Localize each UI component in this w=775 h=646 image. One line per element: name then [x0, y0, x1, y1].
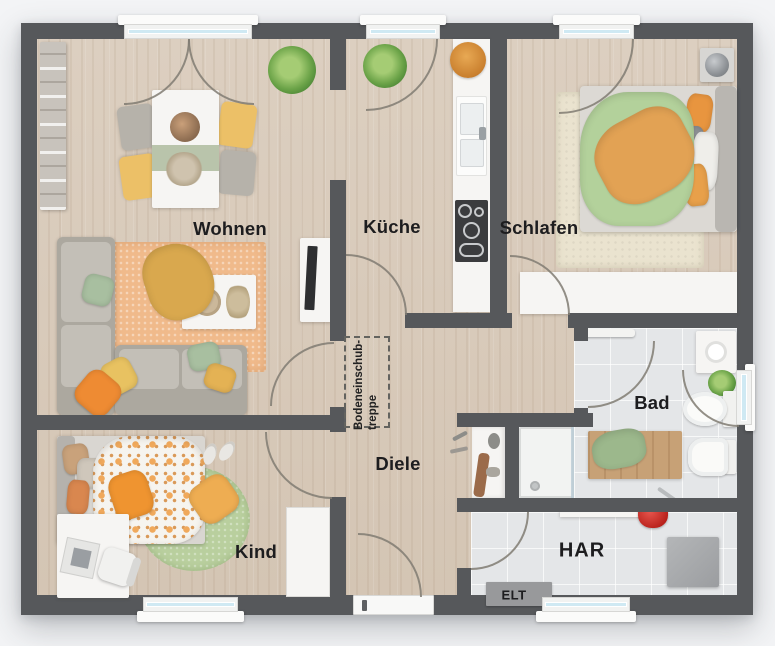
burner [474, 207, 484, 217]
storage-box [667, 537, 719, 587]
toilet-bowl [683, 392, 727, 426]
room-label-kind: Kind [235, 541, 277, 563]
wall-niche-top [457, 413, 593, 427]
room-label-wohnen: Wohnen [193, 218, 267, 240]
wall-wohnen-diele [330, 180, 346, 341]
wall-schlafen-bad [568, 313, 737, 328]
speaker [705, 53, 729, 77]
cleaning-items [488, 433, 500, 449]
bidet [688, 436, 736, 478]
window-glass [128, 29, 248, 34]
shower-drain [530, 481, 540, 491]
monitor-screen [70, 548, 91, 569]
palm-plant [268, 46, 316, 94]
cleaning-items [486, 467, 500, 477]
window-glass [563, 29, 630, 34]
room-label-schlafen: Schlafen [500, 217, 579, 239]
wall-wohnen-kind [37, 415, 346, 430]
bedroom-sideboard [520, 272, 737, 314]
window-sill [137, 611, 244, 622]
bookshelf [40, 42, 66, 210]
dried-flowers [164, 152, 204, 186]
wall-kueche-schlafen [490, 39, 507, 328]
centerpiece-bowl [170, 112, 200, 142]
wall-bad-left-top [574, 328, 588, 341]
window-glass [146, 602, 235, 607]
headboard [715, 86, 737, 232]
toilet-paper-holder [696, 331, 736, 373]
window-glass [741, 374, 747, 421]
attic-stairs-line1: Bodeneinschub- [353, 334, 367, 430]
attic-stairs-line2: treppe [367, 334, 381, 430]
nightstand [700, 48, 734, 82]
room-label-kueche: Küche [363, 216, 421, 238]
burner [463, 222, 480, 239]
dining-chair-gray [217, 150, 257, 197]
room-label-elt: ELT [501, 588, 526, 603]
toilet [683, 389, 737, 429]
dining-chair-yellow [216, 101, 258, 150]
wall-har-left [457, 568, 471, 595]
room-label-diele: Diele [375, 453, 420, 475]
door-handle [362, 600, 367, 611]
dining-table [152, 90, 219, 208]
wall-kind-diele [330, 497, 346, 595]
fruit-bowl [450, 42, 486, 78]
mustard-throw-blanket [135, 234, 223, 327]
paper-roll [705, 341, 727, 363]
bidet-basin [688, 438, 728, 476]
burner-oval [459, 243, 484, 257]
window-glass [370, 29, 436, 34]
shower-glass [571, 427, 574, 498]
wall-kueche-diele [405, 313, 507, 328]
wardrobe [286, 507, 330, 597]
corner-sofa [57, 237, 247, 415]
kitchen-plant [363, 44, 407, 88]
wall-segment [507, 313, 512, 328]
sink-basin [460, 139, 484, 167]
kitchen-sink [456, 96, 487, 176]
wall-bad-har [457, 498, 737, 512]
double-bed [580, 86, 737, 232]
window-sill [536, 611, 636, 622]
attic-stairs-label: Bodeneinschub- treppe [353, 334, 381, 430]
entrance-door [353, 595, 434, 615]
towel-rail [583, 329, 635, 337]
wall-wohnen-kueche-stub [330, 39, 346, 90]
orange-pillow [66, 479, 91, 515]
storage-niche [472, 427, 505, 498]
room-label-bad: Bad [634, 392, 670, 414]
burner [458, 204, 472, 218]
window-glass [545, 602, 627, 607]
floor-plan-canvas: Bodeneinschub- treppe Wohnen Küche Schla… [0, 0, 775, 646]
room-label-har: HAR [559, 540, 605, 563]
shower-tray [519, 427, 574, 498]
faucet [479, 127, 486, 140]
wall-niche-shower [505, 427, 519, 498]
cooktop [455, 200, 488, 262]
